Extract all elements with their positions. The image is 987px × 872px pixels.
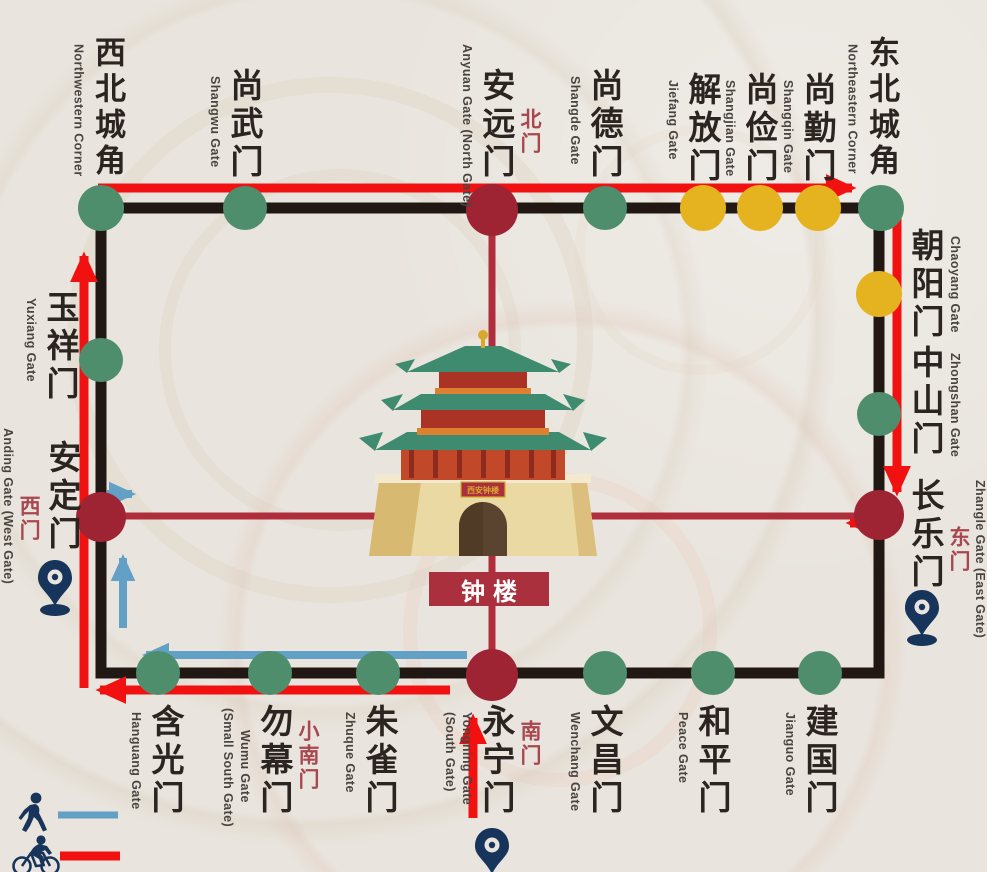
dot-northeastern-corner bbox=[858, 185, 904, 231]
gate-name-en: Hanguang Gate bbox=[128, 712, 143, 818]
cyclist-icon bbox=[14, 835, 59, 872]
gate-name-zh: 长乐门 bbox=[906, 478, 944, 638]
gate-name-zh: 东北城角 bbox=[862, 36, 898, 180]
bell-tower-plaque: 钟楼 bbox=[429, 572, 549, 606]
route-legend bbox=[14, 793, 121, 872]
gate-name-en: Zhongshan Gate bbox=[947, 353, 962, 459]
gate-label-shangde: 尚德门 Shangde Gate bbox=[565, 68, 626, 182]
gate-name-en: Anding Gate (West Gate) bbox=[0, 428, 15, 584]
gate-label-northwestern-corner: 西北城角 Northwestern Corner bbox=[68, 36, 127, 180]
gate-name-en: Shangwu Gate bbox=[207, 76, 222, 182]
xian-city-wall-map: 西安钟楼 bbox=[0, 0, 987, 872]
gate-name-en: Yongning Gate bbox=[459, 712, 474, 818]
dot-chaoyang-gate bbox=[856, 271, 902, 317]
dot-yongning-gate bbox=[466, 649, 518, 701]
gate-label-yuxiang: 玉祥门 Yuxiang Gate bbox=[21, 290, 82, 404]
gate-label-shangqin: 尚勤门 Shangqin Gate bbox=[778, 72, 839, 186]
gate-name-zh: 玉祥门 bbox=[41, 290, 79, 404]
gate-alt-name: 西门 bbox=[17, 495, 40, 584]
gate-name-en: Shangjian Gate bbox=[722, 80, 737, 186]
gate-name-zh: 解放门 bbox=[683, 72, 721, 186]
gate-label-anyuan: 北门 安远门 Anyuan Gate (North Gate) bbox=[457, 68, 542, 207]
dot-yuxiang-gate bbox=[79, 338, 123, 382]
gate-name-en: Northeastern Corner bbox=[844, 44, 859, 180]
gate-name-zh: 和平门 bbox=[693, 704, 731, 818]
gate-label-jiefang: 解放门 Jiefang Gate bbox=[663, 72, 724, 186]
dot-jiefang-gate bbox=[680, 185, 726, 231]
gate-name-zh: 安远门 bbox=[477, 68, 515, 207]
gate-label-zhongshan: 中山门 Zhongshan Gate bbox=[903, 345, 964, 459]
dot-zhongshan-gate bbox=[857, 392, 901, 436]
gate-name-zh: 安定门 bbox=[43, 440, 81, 584]
dot-hanguang-gate bbox=[136, 651, 180, 695]
gate-alt-name: 小南门 bbox=[296, 720, 319, 827]
gate-name-en: Jiefang Gate bbox=[665, 80, 680, 186]
tower-finial bbox=[478, 330, 488, 340]
gate-name-zh: 中山门 bbox=[906, 345, 944, 459]
gate-alt-name: 南门 bbox=[518, 720, 541, 818]
gate-name-zh: 建国门 bbox=[800, 704, 838, 818]
gate-label-changle: 长乐门 东门 Zhangle Gate (East Gate) bbox=[903, 478, 987, 638]
dot-jianguo-gate bbox=[798, 651, 842, 695]
gate-label-shangwu: 尚武门 Shangwu Gate bbox=[205, 68, 266, 182]
dot-shangwu-gate bbox=[223, 186, 267, 230]
gate-name-en: Shangde Gate bbox=[567, 76, 582, 182]
gate-name-zh: 尚武门 bbox=[225, 68, 263, 182]
gate-label-yongning: 南门 永宁门 Yongning Gate (South Gate) bbox=[440, 704, 542, 818]
gate-label-shangjian: 尚俭门 Shangjian Gate bbox=[720, 72, 781, 186]
dot-wumu-gate bbox=[248, 651, 292, 695]
dot-zhuque-gate bbox=[356, 651, 400, 695]
gate-alt-name: 北门 bbox=[518, 108, 541, 207]
bell-tower-illustration: 西安钟楼 bbox=[359, 330, 607, 556]
gate-name-en: Chaoyang Gate bbox=[947, 236, 962, 342]
dot-wenchang-gate bbox=[583, 651, 627, 695]
gate-label-zhuque: 朱雀门 Zhuque Gate bbox=[340, 704, 401, 818]
gate-name-en: Zhuque Gate bbox=[342, 712, 357, 818]
gate-label-anding: 安定门 西门 Anding Gate (West Gate) bbox=[0, 440, 84, 584]
dot-shangde-gate bbox=[583, 186, 627, 230]
gate-name-en: Yuxiang Gate bbox=[23, 298, 38, 404]
gate-name-zh: 勿幕门 bbox=[255, 704, 293, 827]
gate-label-wumu: 小南门 勿幕门 Wumu Gate (Small South Gate) bbox=[218, 704, 320, 827]
gate-name-en: Northwestern Corner bbox=[70, 44, 85, 180]
gate-name-en: Wenchang Gate bbox=[567, 712, 582, 818]
gate-label-wenchang: 文昌门 Wenchang Gate bbox=[565, 704, 626, 818]
gate-label-northeastern-corner: 东北城角 Northeastern Corner bbox=[842, 36, 901, 180]
gate-label-hanguang: 含光门 Hanguang Gate bbox=[126, 704, 187, 818]
gate-label-chaoyang: 朝阳门 Chaoyang Gate bbox=[903, 228, 964, 342]
gate-name-zh: 文昌门 bbox=[585, 704, 623, 818]
tower-name-plaque-text: 西安钟楼 bbox=[467, 485, 499, 495]
gate-name-zh: 尚勤门 bbox=[798, 72, 836, 186]
gate-label-jianguo: 建国门 Jianguo Gate bbox=[780, 704, 841, 818]
location-pin-icon-south bbox=[475, 828, 509, 872]
gate-name-zh: 朝阳门 bbox=[906, 228, 944, 342]
gate-name-en-sub: (South Gate) bbox=[442, 712, 457, 818]
gate-name-en: Peace Gate bbox=[675, 712, 690, 818]
pedestrian-icon bbox=[19, 793, 48, 832]
dot-shangqin-gate bbox=[795, 185, 841, 231]
gate-name-zh: 尚德门 bbox=[585, 68, 623, 182]
gate-name-zh: 含光门 bbox=[146, 704, 184, 818]
gate-name-zh: 西北城角 bbox=[88, 36, 124, 180]
gate-name-en-sub: (Small South Gate) bbox=[220, 708, 235, 827]
dot-shangjian-gate bbox=[737, 185, 783, 231]
gate-name-en: Anyuan Gate (North Gate) bbox=[459, 44, 474, 207]
dot-peace-gate bbox=[691, 651, 735, 695]
gate-name-en: Shangqin Gate bbox=[780, 80, 795, 186]
gate-name-en: Zhangle Gate (East Gate) bbox=[972, 480, 987, 638]
gate-name-zh: 永宁门 bbox=[477, 704, 515, 818]
gate-name-zh: 尚俭门 bbox=[740, 72, 778, 186]
gate-label-peace: 和平门 Peace Gate bbox=[673, 704, 734, 818]
gate-alt-name: 东门 bbox=[947, 526, 970, 638]
gate-name-en: Jianguo Gate bbox=[782, 712, 797, 818]
dot-northwestern-corner bbox=[78, 185, 124, 231]
dot-changle-gate bbox=[854, 490, 904, 540]
gate-name-zh: 朱雀门 bbox=[360, 704, 398, 818]
gate-name-en: Wumu Gate bbox=[237, 730, 252, 827]
